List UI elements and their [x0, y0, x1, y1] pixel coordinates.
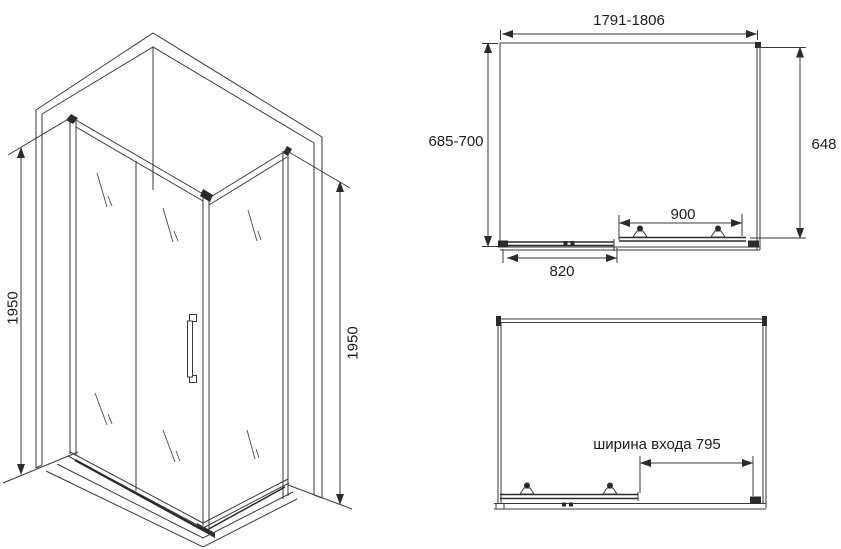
shower-tray: [46, 452, 297, 547]
dimension-overall-width: 1791-1806: [501, 12, 758, 40]
dim-label-height-left: 1950: [4, 291, 21, 324]
wall-panels: [36, 33, 322, 498]
shower-enclosure-technical-drawing: 1950 1950: [0, 0, 841, 549]
arrow-right-icon: [742, 459, 753, 467]
dim-label-side-panel: 648: [811, 136, 836, 153]
dimension-side-panel: 648: [750, 47, 837, 240]
arrow-right-icon: [606, 254, 617, 262]
dim-label-entry-width: ширина входа 795: [593, 436, 721, 453]
arrow-left-icon: [507, 254, 518, 262]
plan-outline: [500, 42, 761, 250]
clamp-mark: [569, 503, 573, 507]
clamp-mark: [571, 241, 575, 245]
dimension-height-right: 1950: [287, 151, 361, 509]
dim-label-door-width: 900: [670, 206, 695, 223]
profile-cap: [750, 497, 761, 504]
clamp-mark: [562, 503, 566, 507]
arrow-up-icon: [796, 47, 804, 58]
door-handle-icon: [188, 315, 197, 383]
dim-label-depth: 685-700: [428, 133, 483, 150]
technical-drawing-page: 1950 1950: [0, 0, 841, 549]
dim-label-height-right: 1950: [344, 326, 361, 359]
roller-icon: [711, 226, 725, 238]
glass-shine-marks: [95, 173, 261, 462]
profile-cap: [496, 504, 504, 510]
arrow-down-icon: [17, 464, 25, 475]
profile-cap: [748, 241, 759, 248]
arrow-left-icon: [640, 459, 651, 467]
dim-label-overall-width: 1791-1806: [593, 12, 665, 29]
dimension-height-left: 1950: [3, 118, 78, 483]
front-outline: [494, 316, 767, 509]
arrow-up-icon: [336, 181, 344, 192]
dimension-depth: 685-700: [428, 42, 498, 247]
arrow-left-icon: [619, 219, 630, 227]
roller-icon: [633, 226, 647, 238]
arrow-right-icon: [746, 30, 757, 38]
isometric-view: 1950 1950: [3, 33, 361, 547]
roller-icon: [603, 483, 617, 495]
dimension-fixed-panel: 820: [503, 248, 617, 280]
wall-profile-cap: [762, 316, 767, 326]
arrow-down-icon: [484, 236, 492, 247]
wall-profile-cap: [496, 316, 501, 326]
plan-view: 1791-1806 685-700 648 900: [428, 12, 836, 280]
profile-cap: [498, 241, 508, 248]
front-sliding-door: [500, 483, 638, 507]
dim-label-fixed-panel: 820: [549, 263, 574, 280]
arrow-right-icon: [731, 219, 742, 227]
roller-icon: [520, 483, 534, 495]
front-plan-view: ширина входа 795: [494, 316, 767, 509]
arrow-left-icon: [502, 30, 513, 38]
dimension-entry-width: ширина входа 795: [593, 436, 753, 496]
arrow-down-icon: [796, 228, 804, 239]
clamp-mark: [564, 241, 568, 245]
